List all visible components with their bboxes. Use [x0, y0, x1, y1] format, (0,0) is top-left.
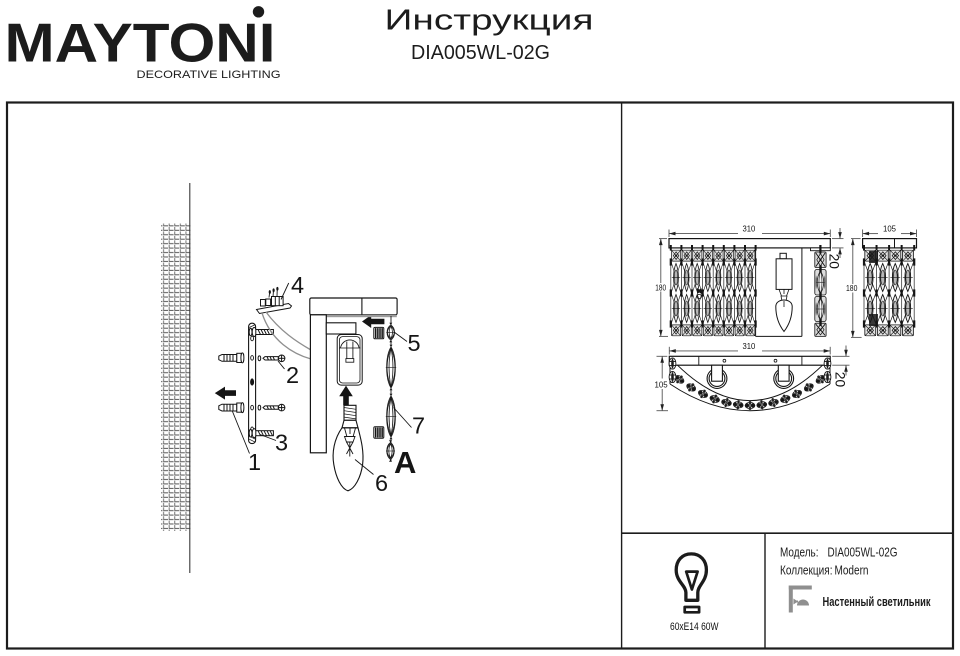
svg-text:105: 105 [883, 224, 896, 234]
svg-text:Инструкция: Инструкция [385, 5, 594, 37]
svg-text:20: 20 [833, 372, 848, 388]
svg-text:105: 105 [655, 379, 668, 389]
svg-text:DECORATIVE LIGHTING: DECORATIVE LIGHTING [137, 69, 281, 81]
svg-text:DIA005WL-02G: DIA005WL-02G [828, 546, 898, 560]
svg-text:5: 5 [408, 330, 421, 356]
svg-text:310: 310 [743, 341, 756, 351]
svg-text:6: 6 [375, 470, 388, 496]
svg-text:180: 180 [846, 283, 858, 293]
svg-text:DIA005WL-02G: DIA005WL-02G [411, 41, 550, 64]
svg-text:MAYTONI: MAYTONI [5, 12, 276, 74]
svg-text:180: 180 [655, 283, 666, 293]
svg-text:A: A [394, 445, 416, 480]
svg-text:310: 310 [743, 224, 756, 234]
svg-text:3: 3 [275, 430, 288, 456]
svg-text:1: 1 [248, 449, 261, 475]
svg-text:20: 20 [827, 254, 842, 270]
svg-text:2: 2 [286, 362, 299, 388]
svg-text:Modern: Modern [835, 564, 869, 578]
svg-text:60xE14 60W: 60xE14 60W [670, 621, 719, 633]
svg-text:Модель:: Модель: [780, 546, 819, 560]
svg-text:4: 4 [291, 272, 304, 298]
svg-text:Настенный светильник: Настенный светильник [823, 594, 931, 609]
svg-text:Коллекция:: Коллекция: [780, 564, 833, 578]
svg-text:7: 7 [412, 413, 425, 439]
